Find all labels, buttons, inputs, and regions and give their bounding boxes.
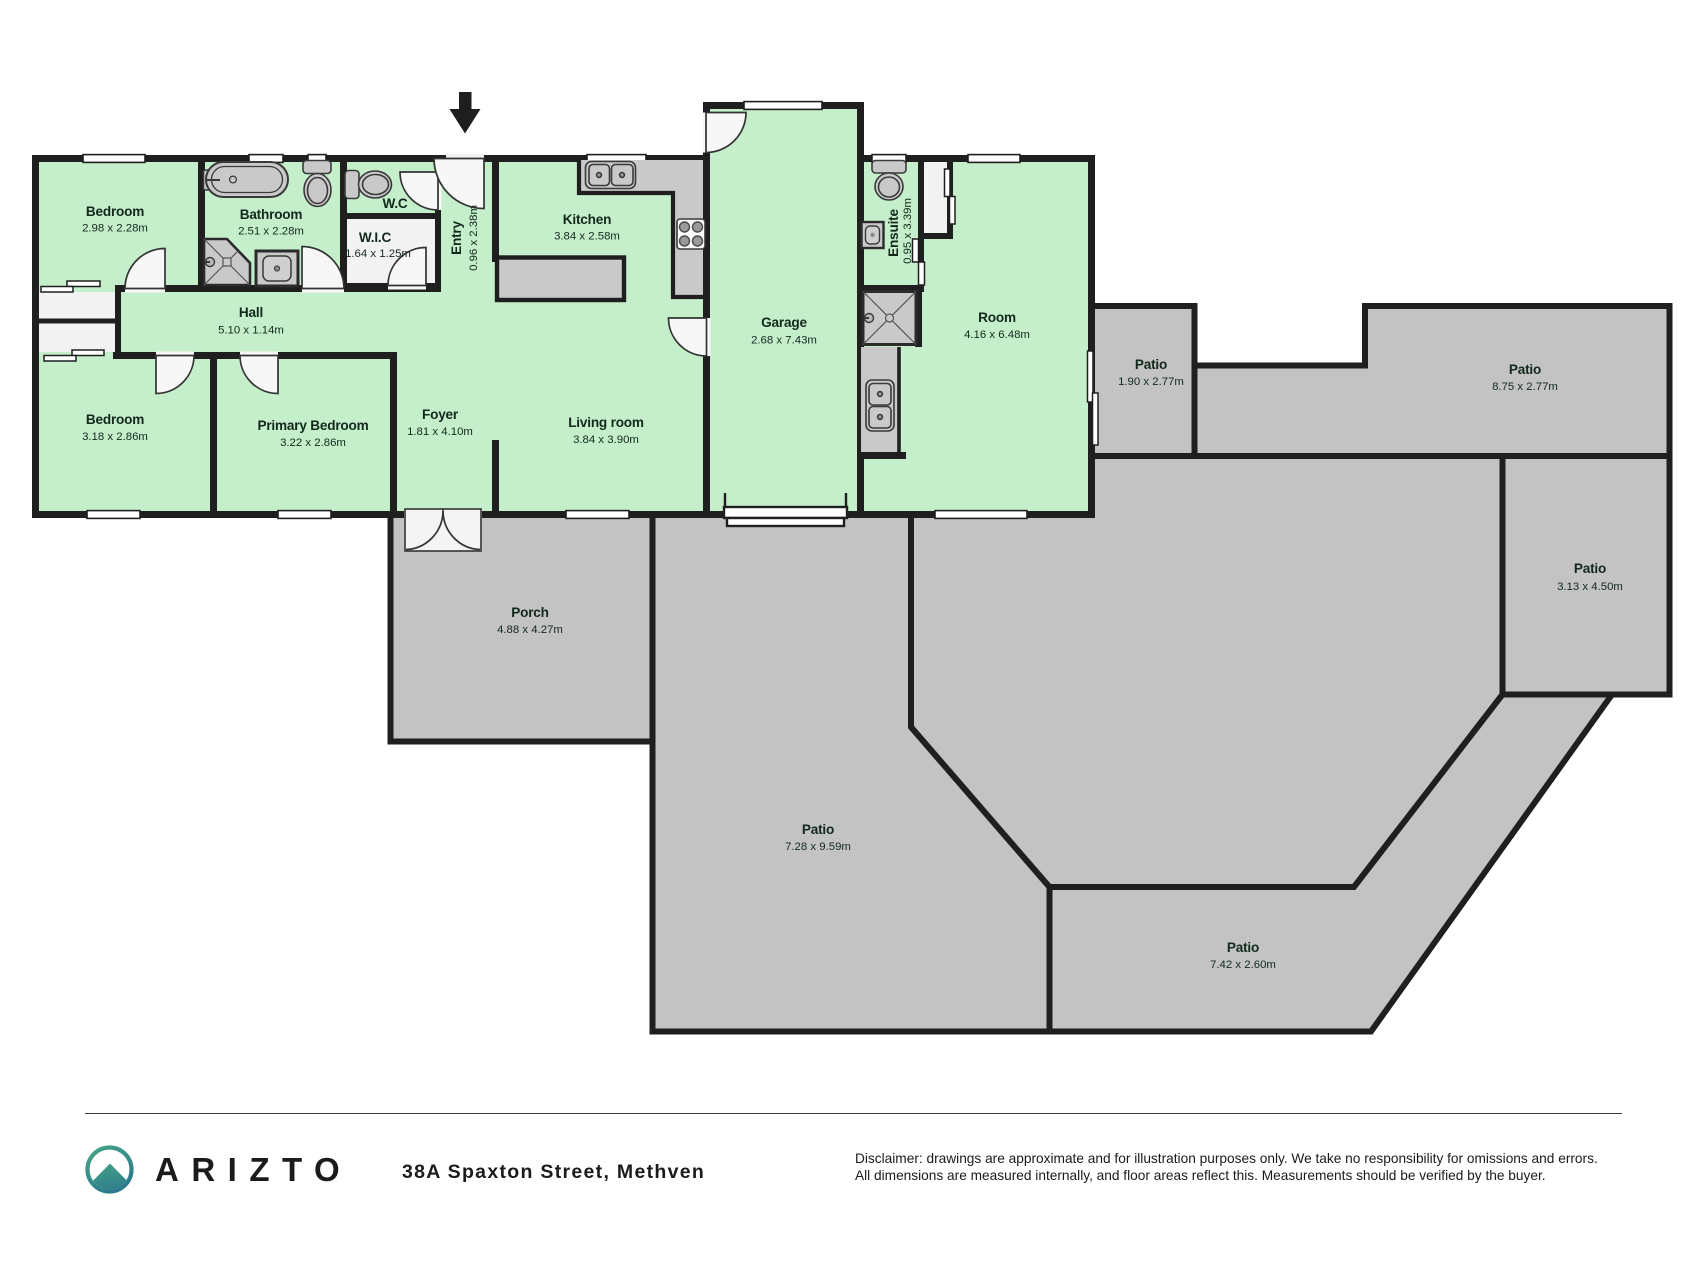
svg-text:2.98 x 2.28m: 2.98 x 2.28m xyxy=(82,223,148,235)
svg-text:Bathroom: Bathroom xyxy=(240,207,303,222)
svg-text:3.13 x 4.50m: 3.13 x 4.50m xyxy=(1557,581,1623,593)
svg-text:2.68 x 7.43m: 2.68 x 7.43m xyxy=(751,335,817,347)
svg-text:1.64 x 1.25m: 1.64 x 1.25m xyxy=(345,248,411,260)
svg-text:Patio: Patio xyxy=(1509,362,1541,377)
svg-text:0.95 x 3.39m: 0.95 x 3.39m xyxy=(902,198,914,264)
svg-text:Disclaimer: drawings are appro: Disclaimer: drawings are approximate and… xyxy=(855,1151,1598,1166)
svg-text:0.96 x 2.38m: 0.96 x 2.38m xyxy=(468,205,480,271)
svg-text:Patio: Patio xyxy=(1135,357,1167,372)
svg-text:4.16 x 6.48m: 4.16 x 6.48m xyxy=(964,329,1030,341)
svg-text:3.18 x 2.86m: 3.18 x 2.86m xyxy=(82,431,148,443)
svg-text:Garage: Garage xyxy=(761,315,807,330)
svg-text:3.22 x 2.86m: 3.22 x 2.86m xyxy=(280,437,346,449)
svg-text:W.C: W.C xyxy=(382,196,407,211)
svg-text:38A Spaxton Street, Methven: 38A Spaxton Street, Methven xyxy=(402,1161,705,1183)
svg-text:Bedroom: Bedroom xyxy=(86,412,144,427)
svg-text:3.84 x 3.90m: 3.84 x 3.90m xyxy=(573,434,639,446)
svg-text:Ensuite: Ensuite xyxy=(886,209,901,257)
svg-text:1.81 x 4.10m: 1.81 x 4.10m xyxy=(407,426,473,438)
svg-text:7.28 x 9.59m: 7.28 x 9.59m xyxy=(785,841,851,853)
svg-text:Foyer: Foyer xyxy=(422,407,459,422)
svg-text:8.75 x 2.77m: 8.75 x 2.77m xyxy=(1492,381,1558,393)
svg-text:Patio: Patio xyxy=(1227,940,1259,955)
svg-text:W.I.C: W.I.C xyxy=(359,230,392,245)
svg-text:Primary Bedroom: Primary Bedroom xyxy=(257,418,368,433)
svg-text:5.10 x 1.14m: 5.10 x 1.14m xyxy=(218,325,284,337)
svg-text:Hall: Hall xyxy=(239,305,263,320)
svg-text:1.90 x 2.77m: 1.90 x 2.77m xyxy=(1118,376,1184,388)
svg-text:Patio: Patio xyxy=(802,822,834,837)
svg-text:2.51 x 2.28m: 2.51 x 2.28m xyxy=(238,226,304,238)
svg-text:3.84 x 2.58m: 3.84 x 2.58m xyxy=(554,231,620,243)
svg-text:Living room: Living room xyxy=(568,415,644,430)
svg-text:Entry: Entry xyxy=(449,220,464,254)
svg-text:Patio: Patio xyxy=(1574,561,1606,576)
svg-text:Bedroom: Bedroom xyxy=(86,204,144,219)
svg-text:Porch: Porch xyxy=(511,605,549,620)
svg-text:7.42 x 2.60m: 7.42 x 2.60m xyxy=(1210,959,1276,971)
svg-text:Kitchen: Kitchen xyxy=(563,212,611,227)
svg-text:Room: Room xyxy=(978,310,1016,325)
svg-text:ARIZTO: ARIZTO xyxy=(155,1151,352,1188)
svg-text:All dimensions are measured in: All dimensions are measured internally, … xyxy=(855,1168,1546,1183)
svg-text:4.88 x 4.27m: 4.88 x 4.27m xyxy=(497,624,563,636)
